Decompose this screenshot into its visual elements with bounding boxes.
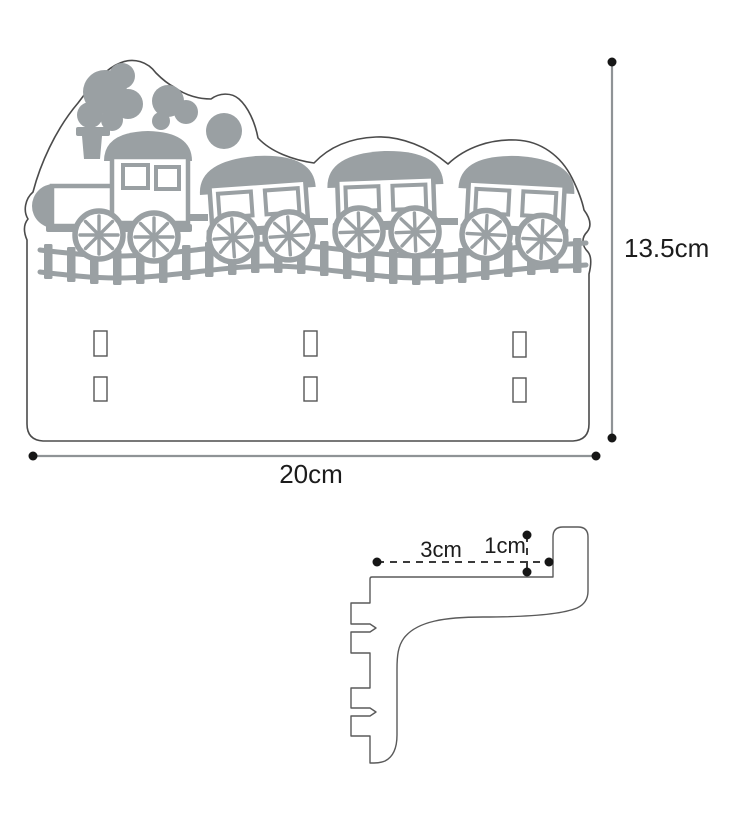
dimension-endpoint-dot [373, 558, 382, 567]
dimension-diagram: 13.5cm 20cm 3cm 1cm [0, 0, 740, 823]
mounting-slot [304, 331, 317, 356]
mounting-slot [304, 377, 317, 401]
mounting-slot [94, 377, 107, 401]
dimension-endpoint-dot [608, 58, 617, 67]
train-shelf-front-view [25, 60, 591, 441]
dimension-endpoint-dot [608, 434, 617, 443]
chimney [82, 136, 102, 159]
wheel [75, 211, 123, 259]
width-dimension-label: 20cm [279, 459, 343, 489]
coupler [188, 214, 208, 221]
depth-dimension-label: 3cm [420, 537, 462, 562]
chimney-cap [76, 127, 110, 136]
wheel [130, 213, 178, 261]
height-dimension-label: 13.5cm [624, 233, 709, 263]
dimension-endpoint-dot [545, 558, 554, 567]
width-dimension: 20cm [29, 452, 601, 490]
mounting-slot [513, 378, 526, 402]
side-profile-view: 3cm 1cm [351, 527, 588, 763]
cab-window [156, 167, 179, 189]
cab-window [123, 165, 148, 188]
dimension-endpoint-dot [523, 568, 532, 577]
gap-dimension: 1cm [484, 531, 531, 577]
dimension-endpoint-dot [29, 452, 38, 461]
mounting-slot [513, 332, 526, 357]
mounting-slot [94, 331, 107, 356]
gap-dimension-label: 1cm [484, 533, 526, 558]
diagram-canvas: 13.5cm 20cm 3cm 1cm [0, 0, 740, 823]
dimension-endpoint-dot [592, 452, 601, 461]
height-dimension: 13.5cm [608, 58, 710, 443]
